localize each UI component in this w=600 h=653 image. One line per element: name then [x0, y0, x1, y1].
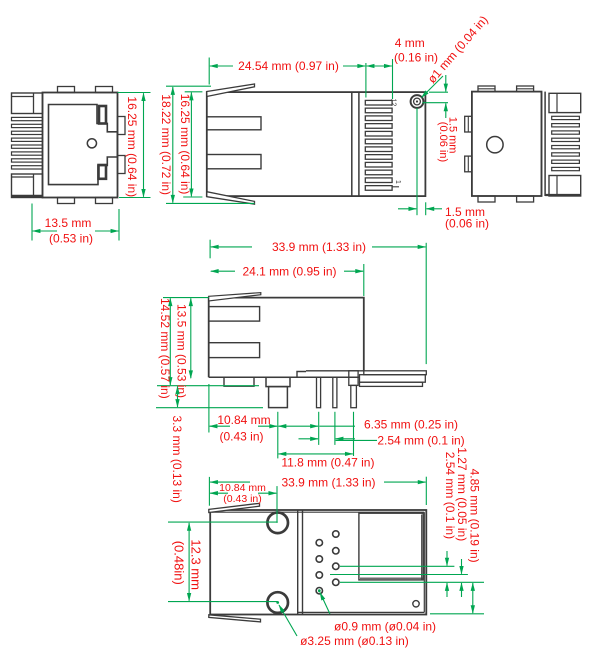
svg-text:ø0.9 mm (ø0.04 in): ø0.9 mm (ø0.04 in) [334, 620, 436, 634]
svg-text:1: 1 [394, 180, 401, 184]
svg-text:14.52 mm (0.57 in): 14.52 mm (0.57 in) [158, 298, 172, 399]
svg-text:(0.16 in): (0.16 in) [394, 51, 438, 65]
svg-text:3.3 mm (0.13 in): 3.3 mm (0.13 in) [170, 416, 184, 503]
svg-text:33.9 mm (1.33 in): 33.9 mm (1.33 in) [272, 240, 366, 254]
svg-text:16.25 mm (0.64 in): 16.25 mm (0.64 in) [178, 94, 192, 195]
svg-text:18.22 mm (0.72 in): 18.22 mm (0.72 in) [159, 94, 173, 195]
svg-text:12.3 mm: 12.3 mm [188, 539, 203, 590]
svg-text:11.8 mm (0.47 in): 11.8 mm (0.47 in) [281, 455, 374, 469]
svg-text:6.35 mm (0.25 in): 6.35 mm (0.25 in) [364, 418, 458, 432]
svg-text:(0.53 in): (0.53 in) [49, 232, 93, 246]
svg-text:2.54 mm (0.1 in): 2.54 mm (0.1 in) [377, 433, 464, 447]
svg-text:13.5 mm: 13.5 mm [45, 216, 92, 230]
svg-text:(0.43 in): (0.43 in) [223, 493, 262, 505]
svg-text:13.5 mm (0.53 in): 13.5 mm (0.53 in) [174, 304, 188, 398]
svg-text:4.85 mm (0.19 in): 4.85 mm (0.19 in) [467, 469, 481, 563]
svg-text:24.1 mm (0.95 in): 24.1 mm (0.95 in) [242, 264, 336, 278]
svg-text:(0.06 in): (0.06 in) [445, 217, 489, 231]
svg-text:(0.43 in): (0.43 in) [219, 430, 263, 444]
svg-text:ø3.25 mm (ø0.13 in): ø3.25 mm (ø0.13 in) [300, 634, 409, 648]
svg-text:12: 12 [390, 99, 397, 107]
svg-text:24.54 mm (0.97 in): 24.54 mm (0.97 in) [238, 59, 339, 73]
svg-text:4 mm: 4 mm [395, 36, 425, 50]
svg-text:2.54 mm (0.1 in): 2.54 mm (0.1 in) [443, 452, 457, 539]
svg-text:(0.48in): (0.48in) [172, 541, 187, 585]
svg-text:1.27 mm (0.05 in): 1.27 mm (0.05 in) [455, 447, 469, 541]
svg-text:10.84 mm: 10.84 mm [217, 413, 270, 427]
svg-text:33.9 mm (1.33 in): 33.9 mm (1.33 in) [281, 475, 375, 489]
svg-text:16.25 mm (0.64 in): 16.25 mm (0.64 in) [125, 96, 139, 197]
svg-text:(0.06 in): (0.06 in) [437, 122, 449, 162]
